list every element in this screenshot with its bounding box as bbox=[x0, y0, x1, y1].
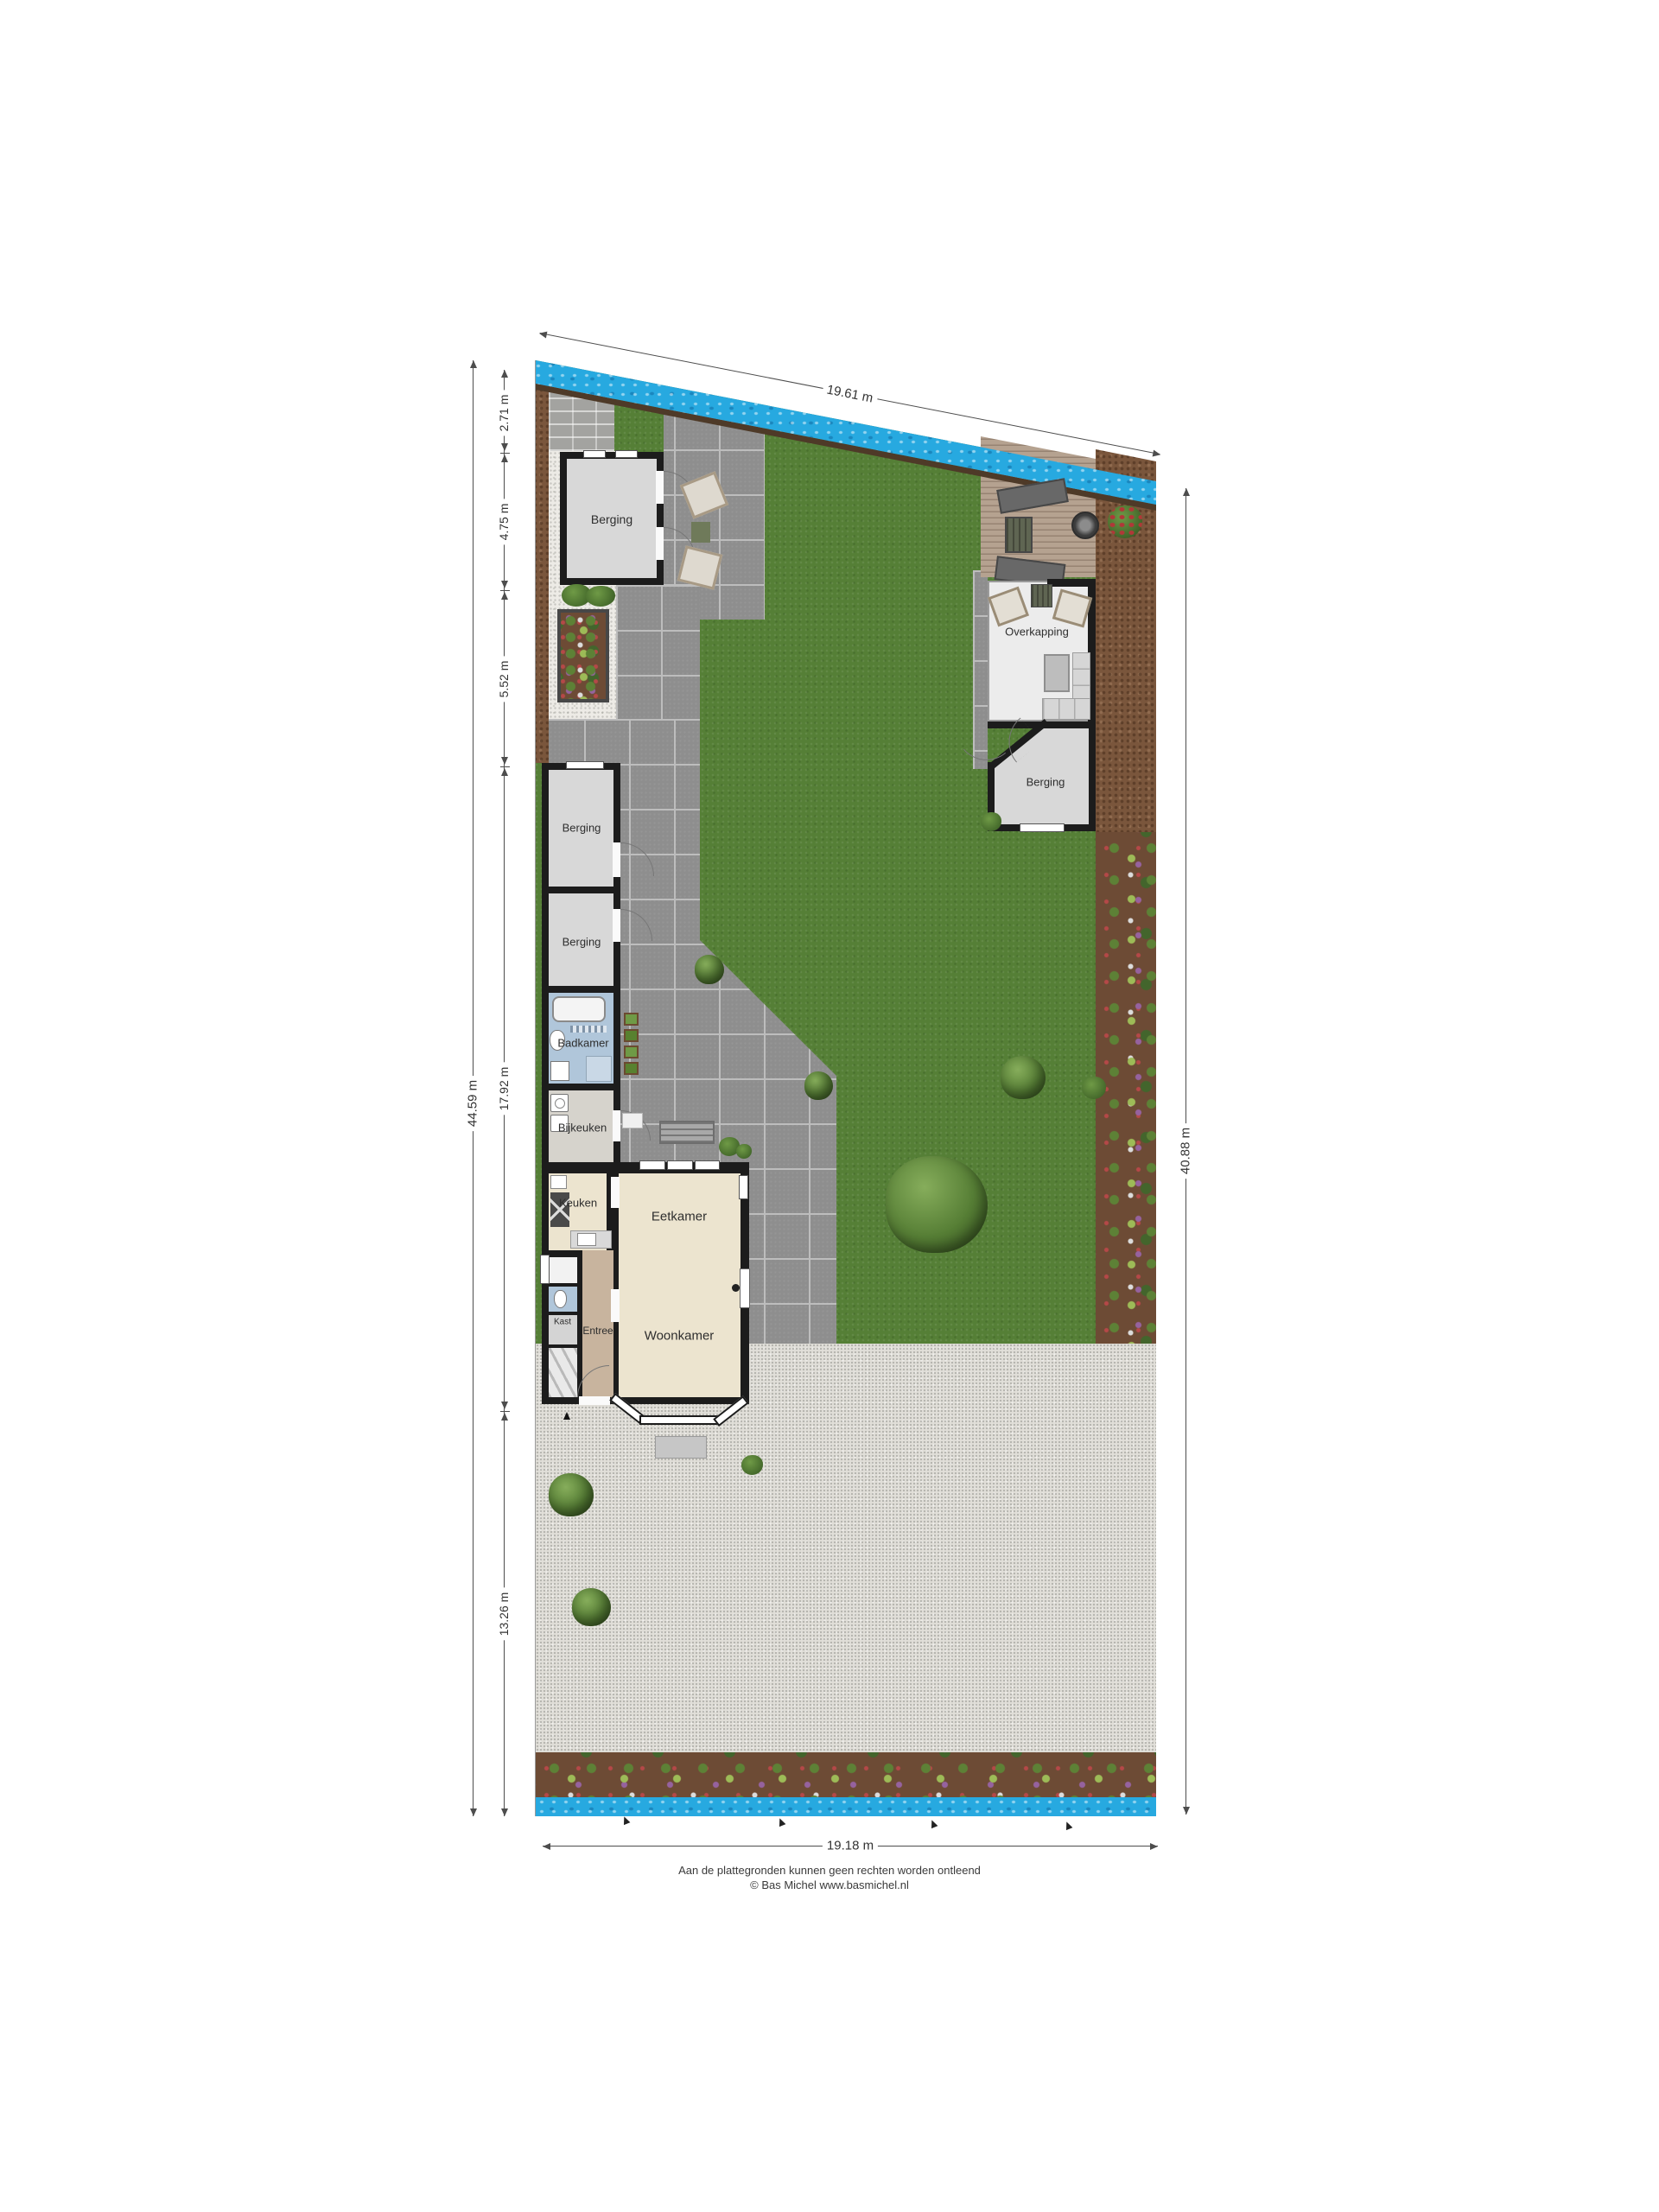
large-tree bbox=[886, 1156, 988, 1253]
bush bbox=[736, 1144, 752, 1159]
bijkeuken-door-gap bbox=[613, 1110, 620, 1141]
entrance-marker bbox=[563, 1412, 570, 1420]
berging-door-gap bbox=[613, 842, 620, 877]
room-label-badkamer: Badkamer bbox=[557, 1037, 608, 1050]
dim-label-seg-1: 2.71 m bbox=[496, 391, 512, 436]
shed-window bbox=[583, 450, 606, 458]
dim-label-right: 40.88 m bbox=[1178, 1123, 1194, 1179]
flower-pot bbox=[624, 1013, 639, 1026]
tree bbox=[804, 1071, 833, 1100]
room-label-entree: Entree bbox=[582, 1325, 613, 1337]
kitchen-door-gap bbox=[611, 1177, 620, 1208]
room-label-kast: Kast bbox=[554, 1318, 571, 1327]
door-mat bbox=[622, 1113, 643, 1128]
room-label-eetkamer: Eetkamer bbox=[652, 1210, 707, 1224]
dim-label-left-total: 44.59 m bbox=[465, 1076, 481, 1131]
stairs bbox=[549, 1348, 577, 1397]
garden-bench bbox=[659, 1121, 715, 1144]
footer: Aan de plattegronden kunnen geen rechten… bbox=[0, 1863, 1659, 1892]
water-edge-bottom bbox=[536, 1797, 1156, 1816]
dining-window bbox=[667, 1160, 693, 1170]
footer-disclaimer: Aan de plattegronden kunnen geen rechten… bbox=[0, 1863, 1659, 1878]
side-window bbox=[739, 1175, 748, 1199]
flower-pot bbox=[624, 1029, 639, 1042]
door-knob bbox=[732, 1284, 740, 1292]
tree bbox=[572, 1588, 611, 1626]
deck-table bbox=[1005, 517, 1033, 553]
bush bbox=[586, 586, 615, 607]
post-marker bbox=[929, 1819, 938, 1828]
floorplan-page: Berging Berging Berging Badkamer Bijkeuk… bbox=[0, 0, 1659, 2212]
room-living bbox=[619, 1173, 741, 1397]
post-marker bbox=[1064, 1821, 1073, 1830]
berging-door-gap bbox=[613, 909, 620, 942]
terrace-door-gap bbox=[740, 1268, 750, 1308]
flower-border-bottom bbox=[536, 1752, 1156, 1797]
side-table bbox=[691, 522, 710, 543]
post-marker bbox=[777, 1817, 786, 1827]
berging-right-window bbox=[1020, 823, 1065, 832]
bush bbox=[1082, 1077, 1106, 1099]
tree bbox=[549, 1473, 594, 1516]
shed-door-gap bbox=[656, 527, 664, 560]
bay-window bbox=[639, 1415, 721, 1425]
flowering-bush bbox=[1108, 505, 1142, 538]
kitchen-sink bbox=[577, 1233, 596, 1246]
fridge bbox=[550, 1175, 567, 1189]
hall-window bbox=[540, 1255, 550, 1284]
bush bbox=[741, 1455, 763, 1475]
flower-pot bbox=[624, 1062, 639, 1075]
room-label-woonkamer: Woonkamer bbox=[645, 1329, 715, 1344]
tree bbox=[695, 955, 724, 984]
radiator bbox=[570, 1026, 607, 1033]
room-label-berging1: Berging bbox=[563, 822, 601, 835]
room-label-keuken: Keuken bbox=[559, 1197, 597, 1210]
dim-label-seg-2: 4.75 m bbox=[496, 499, 512, 545]
coffee-table bbox=[1044, 654, 1070, 692]
room-label-shed: Berging bbox=[591, 512, 632, 526]
washbasin bbox=[550, 1061, 569, 1081]
post-marker bbox=[621, 1815, 631, 1825]
bathtub bbox=[552, 996, 606, 1022]
planter-box bbox=[557, 609, 609, 702]
fire-bowl bbox=[1071, 512, 1099, 539]
dim-label-seg-5: 13.26 m bbox=[496, 1588, 512, 1641]
room-label-berging2: Berging bbox=[563, 936, 601, 949]
shed-window bbox=[615, 450, 638, 458]
tree bbox=[1001, 1056, 1046, 1099]
dining-window bbox=[695, 1160, 720, 1170]
front-door-gap bbox=[579, 1396, 610, 1405]
washer bbox=[550, 1094, 569, 1112]
dining-window bbox=[639, 1160, 665, 1170]
toilet bbox=[554, 1290, 567, 1308]
plot-edge-left bbox=[535, 360, 536, 1816]
room-label-berging-right: Berging bbox=[1027, 776, 1065, 789]
corner-sofa bbox=[1042, 698, 1090, 720]
footer-credit: © Bas Michel www.basmichel.nl bbox=[0, 1878, 1659, 1892]
bush bbox=[981, 812, 1001, 831]
paved-path-upper bbox=[616, 585, 700, 720]
shed-door-gap bbox=[656, 471, 664, 504]
dim-label-seg-4: 17.92 m bbox=[496, 1063, 512, 1116]
room-cupboard bbox=[549, 1257, 577, 1283]
flower-pot bbox=[624, 1046, 639, 1058]
berging-right-wall bbox=[1089, 721, 1096, 831]
dim-label-top: 19.61 m bbox=[821, 381, 879, 408]
room-label-overkapping: Overkapping bbox=[1005, 626, 1069, 639]
berging-window bbox=[566, 761, 604, 769]
front-step bbox=[655, 1436, 707, 1459]
dim-label-bottom: 19.18 m bbox=[823, 1838, 878, 1854]
room-label-bijkeuken: Bijkeuken bbox=[558, 1122, 607, 1135]
hall-door-gap bbox=[611, 1289, 620, 1322]
dim-label-seg-3: 5.52 m bbox=[496, 657, 512, 702]
shower bbox=[586, 1056, 612, 1082]
patio-table bbox=[1031, 584, 1052, 607]
